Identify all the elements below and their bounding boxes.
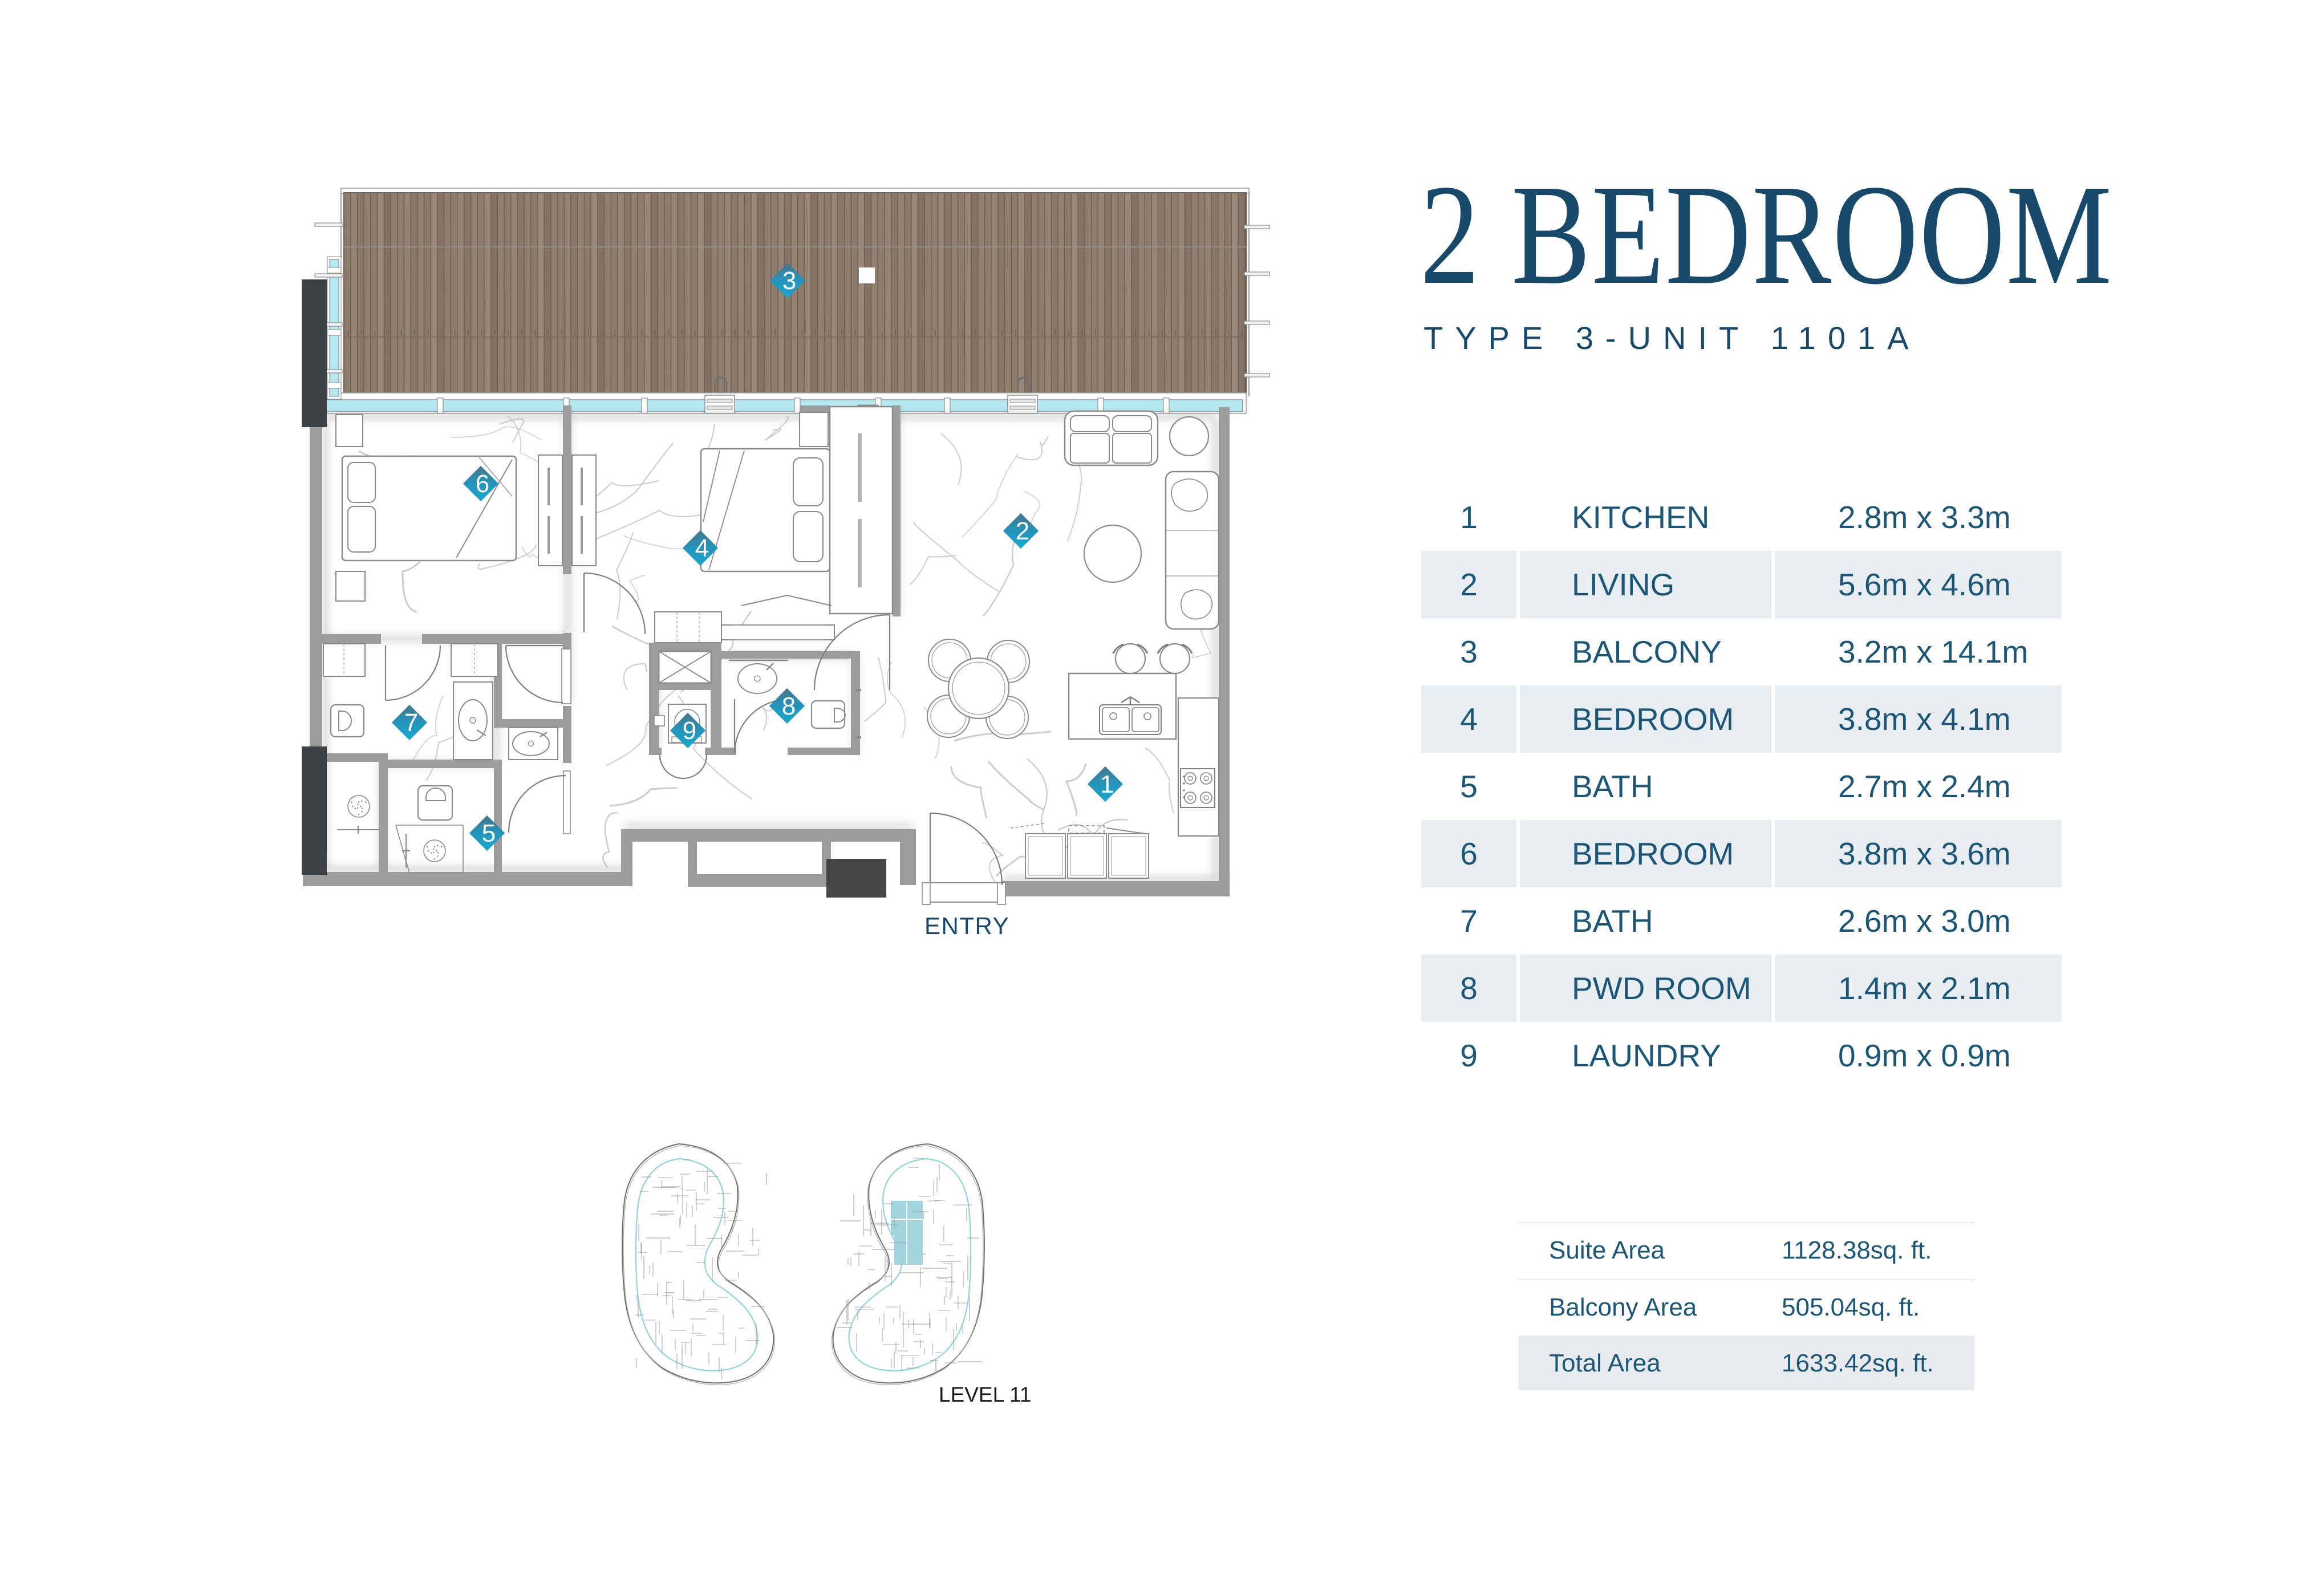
svg-text:3: 3 — [782, 267, 796, 295]
svg-text:ENTRY: ENTRY — [924, 912, 1009, 939]
svg-text:1: 1 — [1100, 770, 1114, 798]
svg-text:2: 2 — [1016, 517, 1029, 545]
svg-text:4: 4 — [695, 534, 709, 562]
svg-text:5: 5 — [482, 819, 496, 847]
svg-text:9: 9 — [683, 717, 696, 745]
svg-text:7: 7 — [404, 709, 418, 737]
svg-text:6: 6 — [476, 470, 489, 498]
svg-text:LEVEL 11: LEVEL 11 — [939, 1383, 1032, 1406]
svg-text:8: 8 — [782, 692, 796, 720]
